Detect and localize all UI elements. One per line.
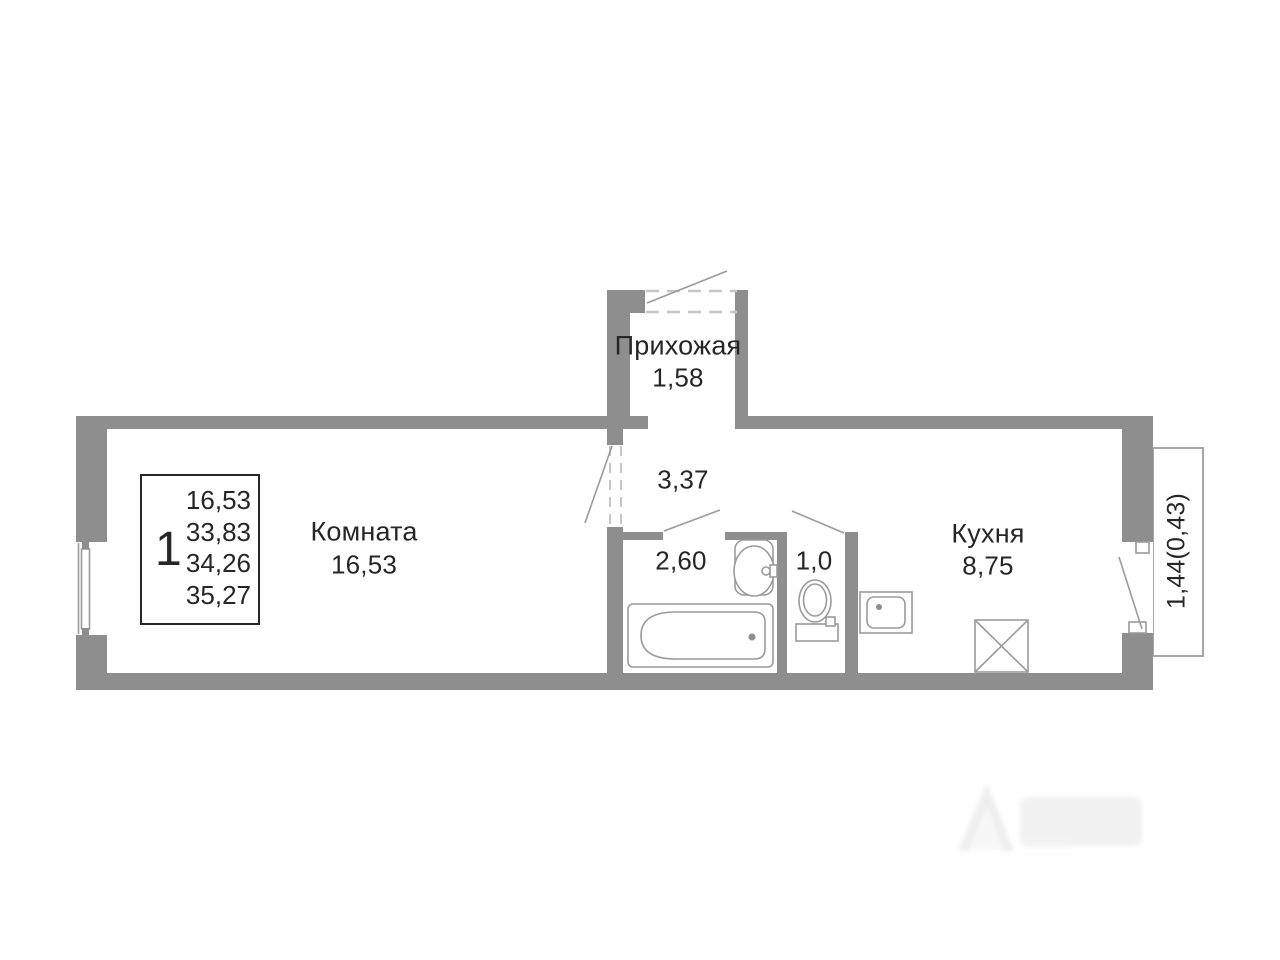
room-label-living: Комната	[310, 517, 417, 548]
room-area-corridor: 3,37	[657, 465, 708, 496]
area-value: 34,26	[186, 548, 251, 580]
room-area-bathroom: 2,60	[655, 546, 706, 577]
room-door	[585, 446, 621, 525]
room-label-kitchen: Кухня	[951, 519, 1024, 550]
room-area-kitchen: 8,75	[962, 551, 1013, 582]
balcony-door	[1119, 542, 1153, 633]
kitchen-sink	[860, 592, 912, 633]
room-count: 1	[155, 526, 182, 574]
area-summary-values: 16,53 33,83 34,26 35,27	[186, 485, 251, 611]
bathtub	[628, 604, 773, 667]
area-summary-box: 1 16,53 33,83 34,26 35,27	[140, 474, 260, 625]
room-area-balcony: 1,44(0,43)	[1163, 493, 1192, 609]
bathroom-door	[664, 510, 720, 531]
toilet	[796, 580, 838, 641]
room-area-living: 16,53	[331, 550, 397, 581]
stove	[975, 620, 1028, 672]
entrance-door	[646, 271, 737, 312]
floor-plan: Комната 16,53 Прихожая 1,58 3,37 2,60 1,…	[0, 0, 1280, 960]
bath-sink	[734, 540, 777, 596]
wc-door	[792, 511, 844, 533]
room-area-wc: 1,0	[796, 546, 833, 577]
room-label-hallway: Прихожая	[615, 331, 742, 362]
watermark	[958, 783, 1142, 851]
area-value: 35,27	[186, 580, 251, 612]
area-value: 16,53	[186, 485, 251, 517]
area-value: 33,83	[186, 517, 251, 549]
room-area-hallway: 1,58	[652, 363, 703, 394]
window	[76, 542, 107, 635]
